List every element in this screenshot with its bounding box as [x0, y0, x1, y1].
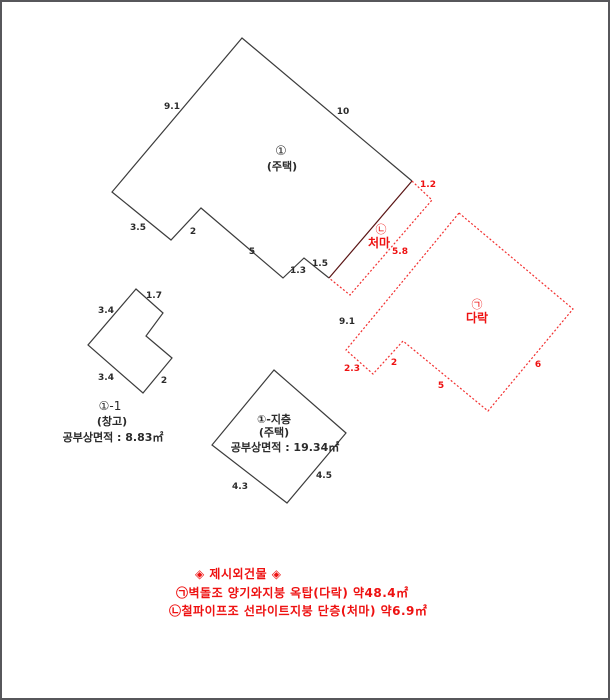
dim-attic-5: 5: [438, 381, 444, 391]
survey-sketch-page: 9.1103.5251.31.59.11.73.43.424.34.51.25.…: [0, 0, 610, 700]
dim-basement-4-5: 4.5: [316, 471, 332, 481]
legend-attic-line: ㉠벽돌조 양기와지붕 옥탑(다락) 약48.4㎡: [176, 584, 409, 601]
dim-main-1-5: 1.5: [312, 259, 328, 269]
label-attic-symbol: ㉠: [472, 298, 483, 311]
label-storage-area: 공부상면적 : 8.83㎡: [63, 430, 164, 444]
label-storage-use: (창고): [97, 414, 127, 428]
label-main-use: (주택): [267, 159, 297, 173]
dim-eaves-5-8: 5.8: [392, 247, 408, 257]
dim-storage-1-7: 1.7: [146, 291, 162, 301]
label-basement-use: (주택): [259, 425, 289, 439]
label-main-number: ①: [275, 144, 287, 159]
dim-storage-3-4-top: 3.4: [98, 306, 114, 316]
dim-main-1-3: 1.3: [290, 266, 306, 276]
label-basement-number: ①-지층: [257, 412, 291, 426]
legend-eaves-line: ㉡철파이프조 선라이트지붕 단층(처마) 약6.9㎡: [169, 602, 427, 619]
label-attic-name: 다락: [466, 310, 488, 325]
label-eaves-name: 처마: [368, 235, 390, 250]
dim-eaves-1-2: 1.2: [420, 180, 436, 190]
dim-main-5: 5: [249, 247, 255, 257]
dim-storage-3-4-bottom: 3.4: [98, 373, 114, 383]
dim-main-3-5: 3.5: [130, 223, 146, 233]
dim-attic-2-3: 2.3: [344, 364, 360, 374]
dim-attic-2: 2: [391, 358, 397, 368]
dim-storage-2: 2: [161, 376, 167, 386]
dim-attic-9-1: 9.1: [339, 317, 355, 327]
dim-main-9-1: 9.1: [164, 102, 180, 112]
dim-attic-6: 6: [535, 360, 541, 370]
dim-main-2: 2: [190, 227, 196, 237]
label-storage-number: ①-1: [99, 399, 122, 413]
legend-title: ◈ 제시외건물 ◈: [195, 565, 282, 582]
label-eaves-symbol: ㉡: [376, 223, 387, 236]
eaves-shared-edge: [329, 181, 412, 278]
dim-main-10: 10: [337, 107, 350, 117]
dim-basement-4-3: 4.3: [232, 482, 248, 492]
label-basement-area: 공부상면적 : 19.34㎡: [231, 440, 339, 454]
